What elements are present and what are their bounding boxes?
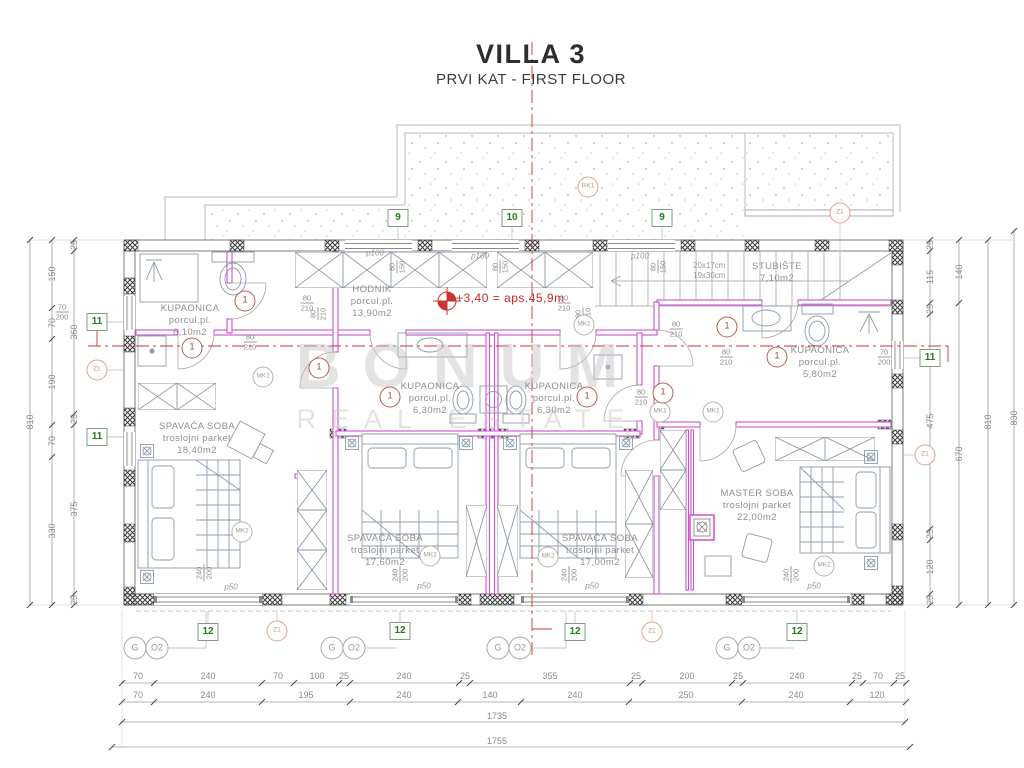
room-area: 13,90m2 <box>351 308 394 320</box>
dim-label: 25 <box>631 671 641 681</box>
room-label-stubiste: STUBIŠTE 7,10m2 <box>752 261 802 285</box>
marker-square-11b: 11 <box>87 428 108 446</box>
dim-label: 250 <box>678 690 693 700</box>
window-size: 240200 <box>560 567 579 584</box>
marker-o2-2: O2 <box>343 637 366 660</box>
room-material: troslojni parket <box>720 500 793 512</box>
door-mark-1: 1 <box>235 291 256 312</box>
dim-label: 240 <box>200 690 215 700</box>
window-size: 240200 <box>391 567 410 584</box>
room-material: porcul.pl. <box>401 393 460 405</box>
dim-label: 25 <box>733 671 743 681</box>
parapet-label: p100 <box>631 252 649 261</box>
parapet-label: p50 <box>224 583 237 592</box>
room-area: 22,00m2 <box>720 512 793 524</box>
window-size: 80150 <box>388 261 407 274</box>
dim-label: 70 <box>873 671 883 681</box>
window-height: 200 <box>878 358 891 367</box>
room-name: KUPAONICA <box>161 303 220 315</box>
window-height: 200 <box>401 567 410 584</box>
room-name: SPAVAĆA SOBA <box>159 421 235 433</box>
window-width: 240 <box>560 567 570 584</box>
door-size: 80210 <box>635 388 648 407</box>
room-material: troslojni parket <box>347 545 423 557</box>
dim-label: 475 <box>925 413 935 428</box>
dim-label: 25 <box>895 671 905 681</box>
room-area: 6,30m2 <box>525 405 584 417</box>
window-width: 80 <box>649 261 659 274</box>
room-material: troslojni parket <box>159 433 235 445</box>
room-name: KUPAONICA <box>791 345 850 357</box>
marker-mk2-b: MK2 <box>420 546 441 567</box>
room-area: 6,30m2 <box>401 405 460 417</box>
door-height: 210 <box>558 304 571 313</box>
door-size: 80210 <box>309 308 328 321</box>
parapet-label: p100 <box>471 252 489 261</box>
room-name: SPAVAĆA SOBA <box>347 533 423 545</box>
marker-z1-left: Z1 <box>87 360 108 381</box>
marker-z1-bottom-2: Z1 <box>642 622 663 643</box>
window-size: 70200 <box>56 303 69 322</box>
door-mark-3: 1 <box>309 358 330 379</box>
room-label-master: MASTER SOBA troslojni parket 22,00m2 <box>720 488 793 524</box>
door-width: 80 <box>301 294 314 304</box>
room-label-spavaca-3: SPAVAĆA SOBA troslojni parket 17,00m2 <box>562 533 638 569</box>
title-main: VILLA 3 <box>436 38 626 70</box>
marker-z1-right: Z1 <box>915 445 936 466</box>
elevation-label: +3,40 = aps.45,9m <box>456 291 565 305</box>
room-material: porcul.pl. <box>525 393 584 405</box>
dim-label: 240 <box>788 690 803 700</box>
dim-label: 830 <box>1009 410 1019 425</box>
dim-label: 70 <box>133 671 143 681</box>
door-mark-7: 1 <box>767 347 788 368</box>
marker-o2-4: O2 <box>738 637 761 660</box>
dim-label: 100 <box>309 671 324 681</box>
marker-square-11a: 11 <box>87 313 108 331</box>
dim-label: 360 <box>69 324 79 339</box>
dim-label: 25 <box>69 414 79 424</box>
parapet-label: p50 <box>585 582 598 591</box>
window-width: 240 <box>195 565 205 582</box>
dim-label: 240 <box>396 690 411 700</box>
door-mark-5: 1 <box>577 387 598 408</box>
dim-label: 25 <box>925 529 935 539</box>
room-name: STUBIŠTE <box>752 261 802 273</box>
dim-label: 70 <box>133 690 143 700</box>
title-subtitle: PRVI KAT - FIRST FLOOR <box>436 70 626 90</box>
window-size: 240200 <box>782 567 801 584</box>
marker-mk2-d: MK2 <box>814 556 835 577</box>
dim-label: 25 <box>69 240 79 250</box>
marker-square-11c: 11 <box>920 349 941 367</box>
marker-g-2: G <box>321 637 344 660</box>
marker-o2-3: O2 <box>509 637 532 660</box>
window-width: 80 <box>388 261 398 274</box>
marker-z1-bottom-1: Z1 <box>267 621 288 642</box>
dim-label: 140 <box>954 264 964 279</box>
room-area: 17,60m2 <box>347 557 423 569</box>
door-size: 80210 <box>670 320 683 339</box>
dim-label: 670 <box>954 446 964 461</box>
window-height: 200 <box>570 567 579 584</box>
door-mark-8: 1 <box>653 383 674 404</box>
marker-square-9a: 9 <box>388 209 409 227</box>
room-label-hodnik: HODNIK porcul.pl. 13,90m2 <box>351 284 394 320</box>
dim-label: 375 <box>69 501 79 516</box>
door-width: 80 <box>309 308 319 321</box>
door-width: 80 <box>670 320 683 330</box>
room-name: KUPAONICA <box>525 381 584 393</box>
stair-note-1: 20x17cm <box>693 261 725 271</box>
dim-label: 25 <box>925 304 935 314</box>
marker-mk1-b: MK1 <box>574 315 595 336</box>
room-area: 5,80m2 <box>791 369 850 381</box>
door-height: 210 <box>244 343 257 352</box>
room-material: porcul.pl. <box>351 296 394 308</box>
dim-label: 355 <box>542 671 557 681</box>
stair-step-note: 20x17cm 19x30cm <box>693 261 725 281</box>
marker-square-12b: 12 <box>390 622 411 640</box>
door-width: 80 <box>635 388 648 398</box>
room-material: troslojni parket <box>562 545 638 557</box>
room-label-kupaonica-1: KUPAONICA porcul.pl. 6,10m2 <box>161 303 220 339</box>
marker-square-10: 10 <box>502 209 523 227</box>
marker-square-9b: 9 <box>652 209 673 227</box>
dim-label: 120 <box>869 690 884 700</box>
room-label-spavaca-2: SPAVAĆA SOBA troslojni parket 17,60m2 <box>347 533 423 569</box>
dim-label: 70 <box>273 671 283 681</box>
window-size: 240200 <box>195 565 214 582</box>
room-name: KUPAONICA <box>401 381 460 393</box>
dim-label: 240 <box>789 671 804 681</box>
dim-label: 240 <box>200 671 215 681</box>
window-width: 240 <box>782 567 792 584</box>
window-height: 200 <box>56 313 69 322</box>
room-label-kupaonica-4: KUPAONICA porcul.pl. 5,80m2 <box>791 345 850 381</box>
marker-z1-top: Z1 <box>830 203 851 224</box>
parapet-label: p100 <box>366 249 384 258</box>
terrace <box>165 125 900 240</box>
room-area: 18,40m2 <box>159 445 235 457</box>
dim-label: 150 <box>47 266 57 281</box>
marker-o2-1: O2 <box>146 637 169 660</box>
door-width: 80 <box>558 294 571 304</box>
dim-label: 25 <box>925 240 935 250</box>
dim-label: 140 <box>482 690 497 700</box>
window-width: 70 <box>878 348 891 358</box>
dim-total-outer: 1755 <box>487 736 507 746</box>
marker-g-1: G <box>124 637 147 660</box>
marker-square-12c: 12 <box>565 623 586 641</box>
door-height: 210 <box>720 358 733 367</box>
dim-label: 195 <box>298 690 313 700</box>
dim-label: 70 <box>47 436 57 446</box>
dim-label: 810 <box>25 414 35 429</box>
marker-mk2-c: MK2 <box>538 547 559 568</box>
drawing-title: VILLA 3 PRVI KAT - FIRST FLOOR <box>436 38 626 90</box>
window-height: 150 <box>501 261 510 274</box>
door-width: 80 <box>720 348 733 358</box>
marker-mk1-c: MK1 <box>650 402 671 423</box>
dim-label: 330 <box>47 523 57 538</box>
marker-g-4: G <box>716 637 739 660</box>
door-mark-2: 1 <box>182 338 203 359</box>
room-label-kupaonica-3: KUPAONICA porcul.pl. 6,30m2 <box>525 381 584 417</box>
window-width: 240 <box>391 567 401 584</box>
dim-label: 25 <box>460 671 470 681</box>
door-height: 210 <box>635 398 648 407</box>
marker-square-12a: 12 <box>198 623 219 641</box>
dim-label: 200 <box>679 671 694 681</box>
door-height: 210 <box>319 308 328 321</box>
room-name: HODNIK <box>351 284 394 296</box>
stair-note-2: 19x30cm <box>693 271 725 281</box>
marker-square-12d: 12 <box>787 623 808 641</box>
marker-mk2-a: MK2 <box>232 522 253 543</box>
dim-label: 25 <box>925 595 935 605</box>
dim-label: 25 <box>852 671 862 681</box>
room-name: MASTER SOBA <box>720 488 793 500</box>
room-name: SPAVAĆA SOBA <box>562 533 638 545</box>
dim-label: 70 <box>47 318 57 328</box>
dim-label: 25 <box>339 671 349 681</box>
dim-label: 810 <box>983 414 993 429</box>
floor-plan-page: BONUM REAL ESTATE VILLA 3 PRVI KAT - FIR… <box>0 0 1024 768</box>
door-size: 80210 <box>244 333 257 352</box>
room-label-spavaca-1: SPAVAĆA SOBA troslojni parket 18,40m2 <box>159 421 235 457</box>
window-width: 80 <box>491 261 501 274</box>
dim-label: 25 <box>69 595 79 605</box>
room-material: porcul.pl. <box>791 357 850 369</box>
window-height: 200 <box>205 565 214 582</box>
room-area: 7,10m2 <box>752 273 802 285</box>
door-mark-6: 1 <box>717 317 738 338</box>
marker-mk1-d: MK1 <box>703 402 724 423</box>
window-width: 70 <box>56 303 69 313</box>
window-height: 150 <box>659 261 668 274</box>
door-size: 80210 <box>558 294 571 313</box>
window-height: 200 <box>792 567 801 584</box>
marker-g-3: G <box>487 637 510 660</box>
dim-label: 240 <box>567 690 582 700</box>
dim-label: 120 <box>925 559 935 574</box>
window-size: 70200 <box>878 348 891 367</box>
room-material: porcul.pl. <box>161 315 220 327</box>
door-width: 80 <box>244 333 257 343</box>
window-size: 80150 <box>649 261 668 274</box>
window-size: 80150 <box>491 261 510 274</box>
marker-mk1-a: MK1 <box>253 367 274 388</box>
door-height: 210 <box>670 330 683 339</box>
parapet-label: p50 <box>417 582 430 591</box>
dim-total-inner: 1735 <box>487 711 507 721</box>
dim-label: 190 <box>47 374 57 389</box>
marker-rk1: RK1 <box>578 177 599 198</box>
door-mark-4: 1 <box>380 387 401 408</box>
room-label-kupaonica-2: KUPAONICA porcul.pl. 6,30m2 <box>401 381 460 417</box>
parapet-label: p50 <box>807 582 820 591</box>
door-size: 80210 <box>720 348 733 367</box>
dim-label: 240 <box>396 671 411 681</box>
window-height: 150 <box>398 261 407 274</box>
dim-label: 115 <box>925 270 935 284</box>
